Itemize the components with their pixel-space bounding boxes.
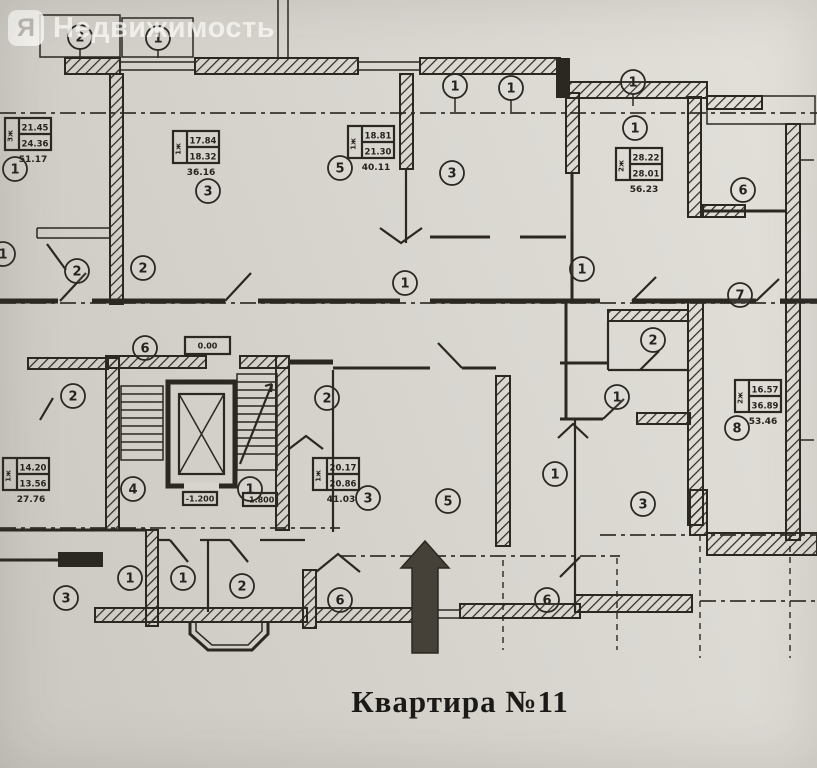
svg-text:1: 1 xyxy=(628,76,637,91)
apartment-stamp: 1ж18.8121.3040.11 xyxy=(348,126,394,173)
apartment-pointer-arrow xyxy=(401,541,449,653)
room-number-circle: 7 xyxy=(728,283,752,307)
svg-text:51.17: 51.17 xyxy=(19,155,47,165)
svg-text:1: 1 xyxy=(630,122,639,137)
svg-text:2: 2 xyxy=(648,334,657,349)
svg-text:5: 5 xyxy=(443,495,452,510)
room-number-circle: 2 xyxy=(315,386,339,410)
svg-text:2: 2 xyxy=(68,390,77,405)
svg-text:13.56: 13.56 xyxy=(20,480,47,490)
room-number-circle: 6 xyxy=(731,178,755,202)
room-number-circle: 2 xyxy=(65,259,89,283)
svg-text:2: 2 xyxy=(72,265,81,280)
room-number-circle: 1 xyxy=(570,257,594,281)
room-number-circle: 2 xyxy=(230,574,254,598)
svg-text:20.86: 20.86 xyxy=(330,480,357,490)
svg-text:4: 4 xyxy=(128,483,137,498)
room-number-circle: 4 xyxy=(121,477,145,501)
svg-text:18.32: 18.32 xyxy=(190,153,217,163)
svg-text:27.76: 27.76 xyxy=(17,495,45,505)
svg-text:6: 6 xyxy=(738,184,747,199)
svg-text:7: 7 xyxy=(735,289,744,304)
room-number-circle: 6 xyxy=(328,588,352,612)
svg-text:8: 8 xyxy=(732,422,741,437)
svg-text:2: 2 xyxy=(237,580,246,595)
walls xyxy=(0,15,817,650)
room-number-circle: 1 xyxy=(443,74,467,98)
caption: Квартира №11 xyxy=(351,684,569,719)
svg-text:1ж: 1ж xyxy=(350,138,358,150)
room-number-circle: 5 xyxy=(436,489,460,513)
svg-text:28.22: 28.22 xyxy=(633,154,660,164)
floorplan-photo: 21111135316271221162218413513311266 3ж21… xyxy=(0,0,817,768)
svg-text:1: 1 xyxy=(450,80,459,95)
svg-text:1: 1 xyxy=(153,32,162,47)
room-number-circle: 1 xyxy=(0,242,15,266)
svg-text:36.16: 36.16 xyxy=(187,168,215,178)
room-number-circle: 1 xyxy=(499,76,523,100)
apartment-stamp: 1ж20.1720.8641.03 xyxy=(313,458,359,505)
room-number-circle: 2 xyxy=(641,328,665,352)
svg-text:3: 3 xyxy=(61,592,70,607)
room-number-circle: 8 xyxy=(725,416,749,440)
apartment-stamp: 2ж28.2228.0156.23 xyxy=(616,148,662,195)
room-number-circle: 3 xyxy=(440,161,464,185)
svg-text:1: 1 xyxy=(550,468,559,483)
svg-text:-1.800: -1.800 xyxy=(246,496,275,505)
floorplan-drawing: 21111135316271221162218413513311266 3ж21… xyxy=(0,0,817,768)
room-number-circle: 6 xyxy=(535,588,559,612)
room-number-circle: 1 xyxy=(543,462,567,486)
svg-text:3ж: 3ж xyxy=(7,130,15,142)
svg-text:17.84: 17.84 xyxy=(190,137,217,147)
svg-text:56.23: 56.23 xyxy=(630,185,658,195)
room-number-circle: 1 xyxy=(621,70,645,94)
svg-text:6: 6 xyxy=(542,594,551,609)
svg-text:1ж: 1ж xyxy=(5,470,13,482)
apartment-stamp: 1ж17.8418.3236.16 xyxy=(173,131,219,178)
room-number-circle: 2 xyxy=(68,25,92,49)
room-number-circle: 3 xyxy=(631,492,655,516)
svg-text:16.57: 16.57 xyxy=(752,386,779,396)
svg-text:18.81: 18.81 xyxy=(365,132,392,142)
room-number-circle: 2 xyxy=(131,256,155,280)
room-number-circle: 5 xyxy=(328,156,352,180)
svg-text:1: 1 xyxy=(125,572,134,587)
svg-text:3: 3 xyxy=(363,492,372,507)
svg-text:2: 2 xyxy=(138,262,147,277)
room-number-circle: 6 xyxy=(133,336,157,360)
room-number-circle: 1 xyxy=(393,271,417,295)
svg-text:14.20: 14.20 xyxy=(20,464,47,474)
room-number-circle: 3 xyxy=(196,179,220,203)
svg-text:1: 1 xyxy=(612,391,621,406)
svg-text:1ж: 1ж xyxy=(175,143,183,155)
svg-text:6: 6 xyxy=(335,594,344,609)
room-number-circle: 3 xyxy=(54,586,78,610)
room-number-circle: 1 xyxy=(118,566,142,590)
svg-text:3: 3 xyxy=(447,167,456,182)
svg-text:3: 3 xyxy=(638,498,647,513)
svg-text:20.17: 20.17 xyxy=(330,464,357,474)
svg-text:5: 5 xyxy=(335,162,344,177)
svg-text:2ж: 2ж xyxy=(618,160,626,172)
svg-text:-1.200: -1.200 xyxy=(186,495,215,504)
svg-text:24.36: 24.36 xyxy=(22,140,49,150)
svg-text:1: 1 xyxy=(400,277,409,292)
elevation-mark: 0.00 xyxy=(185,337,230,354)
svg-text:36.89: 36.89 xyxy=(752,402,779,412)
svg-text:1: 1 xyxy=(506,82,515,97)
svg-text:1: 1 xyxy=(178,572,187,587)
elevation-mark: -1.800 xyxy=(243,493,277,506)
elevation-mark: -1.200 xyxy=(183,492,217,505)
apartment-stamp: 1ж14.2013.5627.76 xyxy=(3,458,49,505)
svg-text:2: 2 xyxy=(75,31,84,46)
svg-text:40.11: 40.11 xyxy=(362,163,390,173)
room-number-circle: 1 xyxy=(146,26,170,50)
stair-core xyxy=(121,374,277,486)
svg-text:0.00: 0.00 xyxy=(198,342,218,351)
room-number-circle: 1 xyxy=(623,116,647,140)
svg-text:2: 2 xyxy=(322,392,331,407)
svg-text:1ж: 1ж xyxy=(315,470,323,482)
stair-flight xyxy=(121,386,163,460)
svg-text:1: 1 xyxy=(0,248,8,263)
svg-text:1: 1 xyxy=(577,263,586,278)
room-number-circle: 2 xyxy=(61,384,85,408)
room-number-circle: 1 xyxy=(605,385,629,409)
svg-text:2ж: 2ж xyxy=(737,392,745,404)
svg-text:53.46: 53.46 xyxy=(749,417,777,427)
svg-text:21.30: 21.30 xyxy=(365,148,392,158)
room-number-circle: 1 xyxy=(171,566,195,590)
svg-text:41.03: 41.03 xyxy=(327,495,355,505)
svg-text:28.01: 28.01 xyxy=(633,170,660,180)
svg-text:21.45: 21.45 xyxy=(22,124,49,134)
svg-text:3: 3 xyxy=(203,185,212,200)
svg-text:6: 6 xyxy=(140,342,149,357)
